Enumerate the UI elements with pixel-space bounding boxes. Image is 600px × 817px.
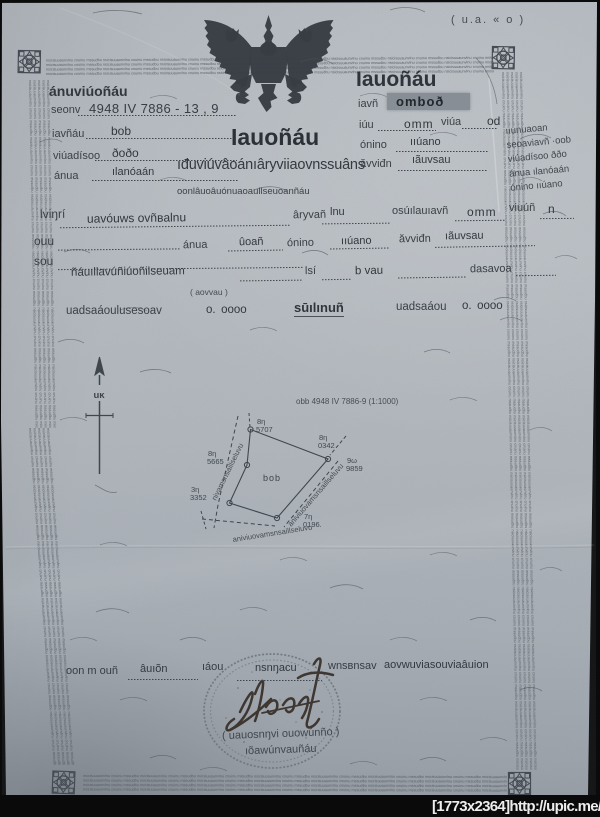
svg-text:uĸ: uĸ — [94, 390, 106, 401]
svg-text:0342: 0342 — [318, 441, 335, 450]
svg-text:5707: 5707 — [256, 425, 273, 434]
svg-text:5665: 5665 — [207, 457, 224, 466]
svg-text:obb 4948 IV 7886-9 (1:1000): obb 4948 IV 7886-9 (1:1000) — [296, 397, 399, 406]
svg-text:9859: 9859 — [346, 464, 363, 473]
svg-text:3352: 3352 — [190, 493, 207, 502]
svg-text:bob: bob — [263, 473, 281, 483]
